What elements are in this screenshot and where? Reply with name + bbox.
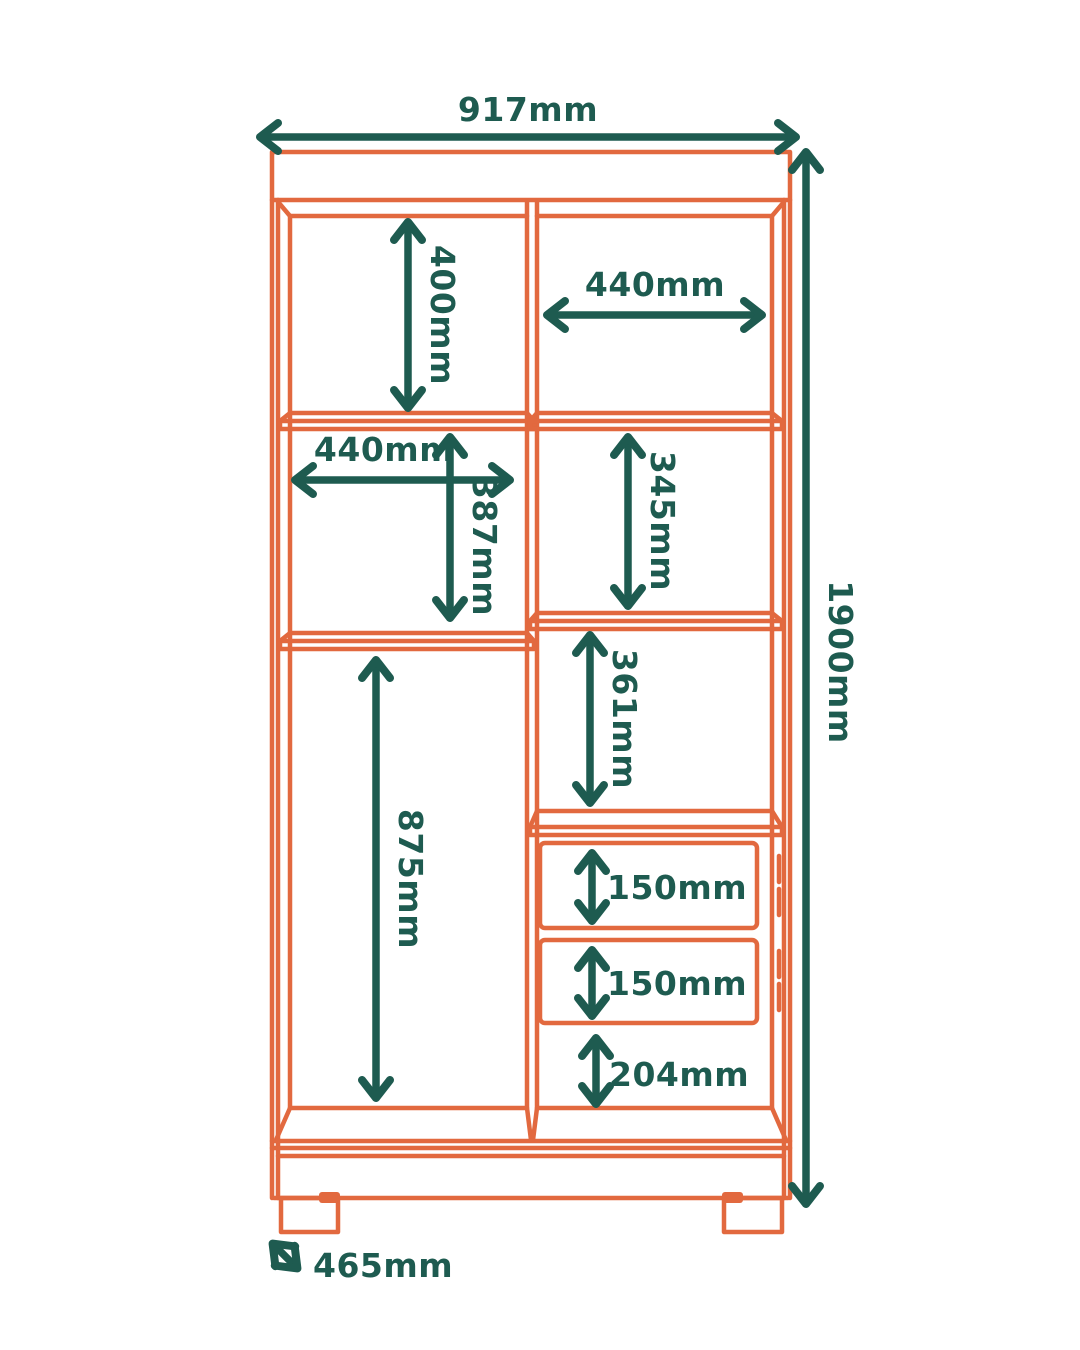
dim-drawer-bottom-height: 150mm bbox=[592, 952, 747, 1014]
right-shelf-1 bbox=[530, 413, 782, 429]
left-floor-panel bbox=[276, 1108, 531, 1140]
cabinet-side-walls bbox=[272, 200, 790, 1198]
dim-right-upper-width: 440mm bbox=[549, 265, 760, 315]
dim-right-third-label: 361mm bbox=[605, 649, 644, 789]
dim-overall-width: 917mm bbox=[262, 90, 794, 137]
left-foot-bracket bbox=[319, 1192, 340, 1203]
dim-right-lower-height: 204mm bbox=[596, 1040, 749, 1102]
dim-overall-height-label: 1900mm bbox=[821, 580, 860, 744]
cabinet-top-panel bbox=[272, 152, 790, 200]
dim-drawer-top-label: 150mm bbox=[607, 868, 747, 907]
dim-right-third-height: 361mm bbox=[590, 637, 644, 801]
diagram-canvas: 917mm 1900mm 400mm 440mm 440mm 387mm bbox=[0, 0, 1080, 1350]
dim-depth-label: 465mm bbox=[313, 1246, 453, 1285]
dim-left-middle-height: 387mm bbox=[450, 439, 504, 616]
dim-right-upper-label: 440mm bbox=[585, 265, 725, 304]
dim-right-second-height: 345mm bbox=[628, 439, 682, 604]
cabinet-dimension-diagram: 917mm 1900mm 400mm 440mm 440mm 387mm bbox=[0, 0, 1080, 1350]
dim-depth-arrow bbox=[274, 1245, 296, 1267]
dim-left-lower-label: 875mm bbox=[391, 809, 430, 949]
dim-right-second-label: 345mm bbox=[643, 451, 682, 591]
dim-right-lower-label: 204mm bbox=[609, 1055, 749, 1094]
dim-left-middle-width-label: 440mm bbox=[314, 430, 454, 469]
right-shelf-3 bbox=[530, 811, 782, 835]
right-foot-bracket bbox=[722, 1192, 743, 1203]
right-foot bbox=[724, 1198, 782, 1232]
right-shelf-2 bbox=[530, 613, 782, 629]
dim-left-upper-label: 400mm bbox=[423, 245, 462, 385]
right-floor-panel bbox=[533, 1108, 786, 1140]
left-foot bbox=[281, 1198, 338, 1232]
plinth-band bbox=[272, 1141, 790, 1156]
dim-left-upper-height: 400mm bbox=[408, 224, 462, 406]
dim-depth: 465mm bbox=[274, 1245, 453, 1285]
left-shelf-2 bbox=[280, 633, 534, 649]
dim-overall-width-label: 917mm bbox=[458, 90, 598, 129]
dim-left-middle-width: 440mm bbox=[297, 430, 508, 480]
dim-left-middle-height-label: 387mm bbox=[465, 476, 504, 616]
left-shelf-1 bbox=[280, 413, 534, 429]
dim-left-lower-height: 875mm bbox=[376, 662, 430, 1096]
dim-drawer-top-height: 150mm bbox=[592, 855, 747, 919]
center-divider bbox=[527, 202, 537, 1108]
dim-drawer-bottom-label: 150mm bbox=[607, 964, 747, 1003]
dim-overall-height: 1900mm bbox=[806, 154, 860, 1202]
